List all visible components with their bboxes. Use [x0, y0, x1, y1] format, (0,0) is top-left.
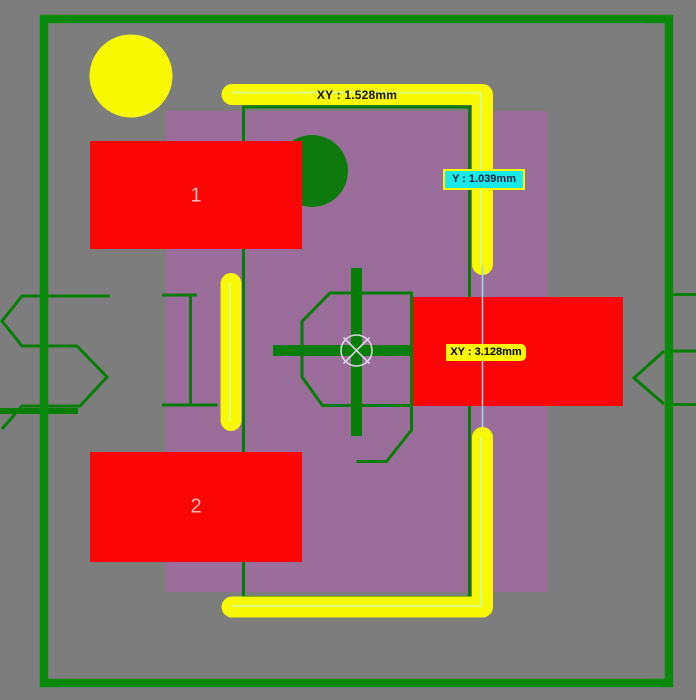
polarity-dot[interactable]: [90, 35, 173, 118]
dimension-label-y: Y : 1.039mm: [443, 169, 525, 190]
pcb-drawing-layer: [0, 0, 696, 700]
pad-1-number: 1: [190, 185, 201, 208]
pcb-editor-canvas[interactable]: XY : 1.528mm Y : 1.039mm XY : 3.128mm 1 …: [0, 0, 696, 700]
dimension-label-xy: XY : 3.128mm: [446, 344, 526, 361]
pad-2-number: 2: [190, 496, 201, 519]
right-net-chevron: [634, 351, 664, 404]
dimension-label-top: XY : 1.528mm: [317, 88, 397, 102]
